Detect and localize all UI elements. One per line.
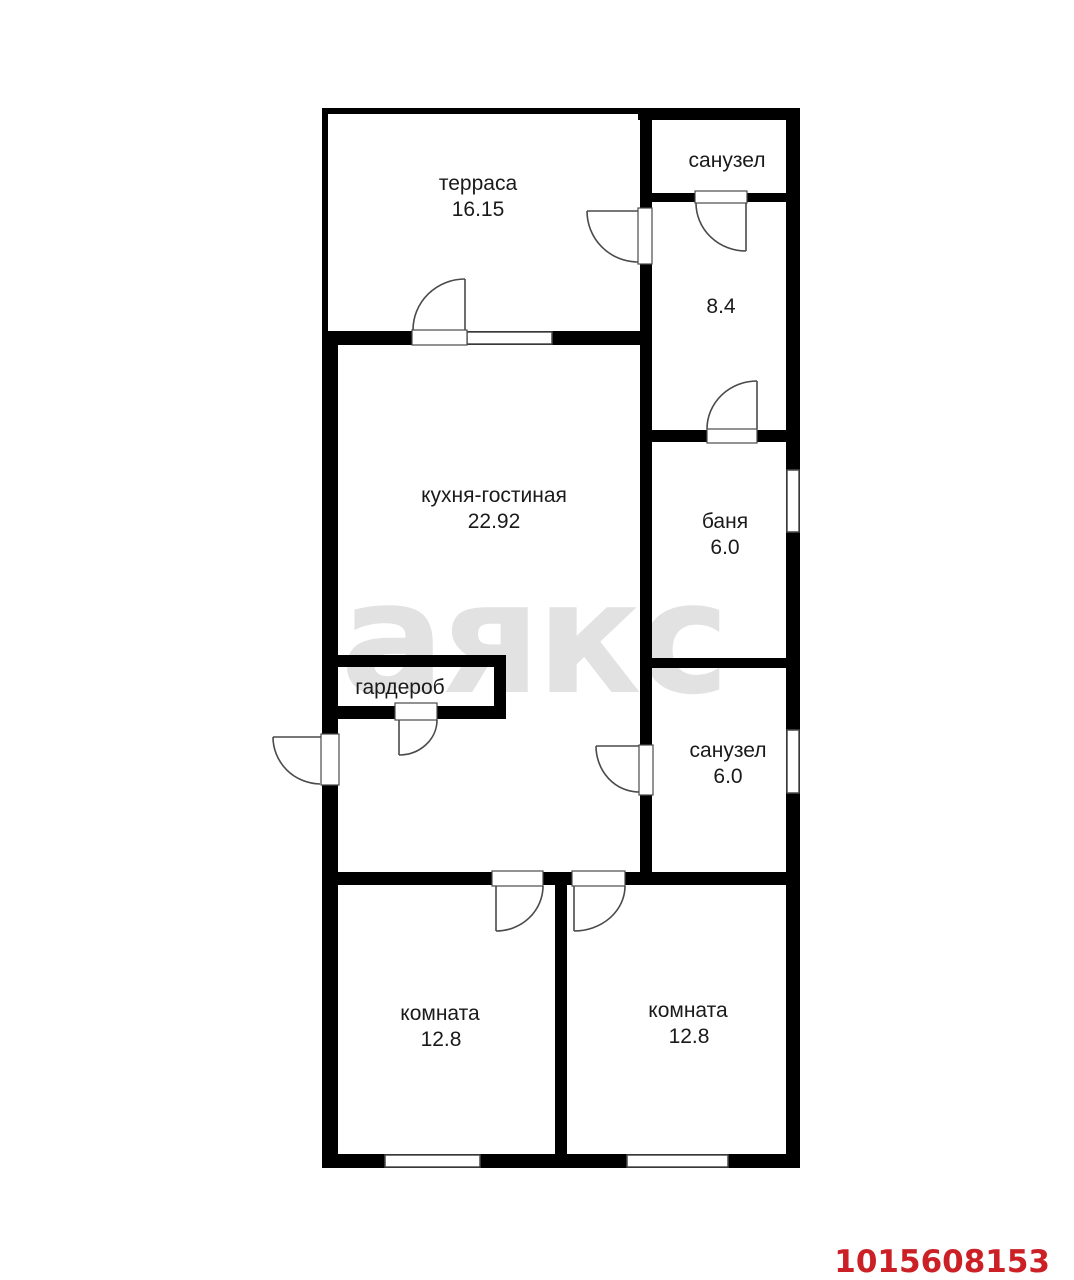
door-room-left xyxy=(496,886,543,931)
door-terrace-kitchen xyxy=(413,279,465,330)
wall-terrace-left xyxy=(322,108,328,336)
door-arc xyxy=(413,279,465,330)
room-label-bathroom-mid: санузел xyxy=(690,739,767,762)
door-bathroom-mid xyxy=(596,746,639,792)
room-label-room-left: комната xyxy=(400,1002,480,1025)
window-room-left xyxy=(385,1155,480,1167)
room-area-hallway: 8.4 xyxy=(706,295,736,318)
room-area-sauna: 6.0 xyxy=(710,536,739,559)
door-opening-room-right xyxy=(572,871,625,886)
wall-right-outer xyxy=(786,108,800,1168)
door-arc xyxy=(574,886,625,931)
door-opening-bathroom-mid xyxy=(639,745,653,795)
floor-plan-page: аякс xyxy=(0,0,1074,1280)
agency-watermark: аякс xyxy=(340,548,725,729)
door-entrance xyxy=(273,737,321,784)
door-terrace-hall xyxy=(587,211,638,262)
wall-top-right xyxy=(638,108,800,120)
window-terrace xyxy=(467,332,552,344)
door-sauna xyxy=(707,381,757,429)
window-room-right xyxy=(627,1155,728,1167)
door-bathroom-top xyxy=(696,203,746,251)
room-label-sauna: баня xyxy=(702,510,748,533)
room-label-wardrobe: гардероб xyxy=(355,676,444,699)
room-label-terrace: терраса xyxy=(439,172,518,195)
wall-bedrooms-divider xyxy=(555,872,567,1168)
floor-plan-drawing: аякс xyxy=(0,0,1074,1280)
door-opening-terrace-hall xyxy=(638,208,652,264)
room-area-terrace: 16.15 xyxy=(452,198,505,221)
door-opening-room-left xyxy=(492,871,543,886)
room-label-bathroom-top: санузел xyxy=(689,149,766,172)
wall-wardrobe-top xyxy=(332,655,506,667)
listing-id: 1015608153 xyxy=(834,1244,1050,1280)
room-area-kitchen-living: 22.92 xyxy=(468,510,521,533)
door-arc xyxy=(696,203,746,251)
door-openings xyxy=(321,191,757,886)
room-area-room-left: 12.8 xyxy=(421,1028,462,1051)
window-bathroom-mid xyxy=(787,730,799,793)
door-room-right xyxy=(574,886,625,931)
door-opening-wardrobe xyxy=(395,703,437,720)
door-arc xyxy=(273,737,320,784)
door-opening-bathroom-top xyxy=(695,191,747,203)
door-opening-sauna xyxy=(707,429,757,443)
room-area-room-right: 12.8 xyxy=(669,1025,710,1048)
door-arc xyxy=(496,886,543,931)
room-label-kitchen-living: кухня-гостиная xyxy=(421,484,567,507)
door-opening-terrace-kitchen xyxy=(412,330,467,345)
door-arc xyxy=(707,381,757,429)
door-arc xyxy=(587,211,638,262)
wall-terrace-top xyxy=(322,108,638,114)
window-sauna xyxy=(787,470,799,532)
room-label-room-right: комната xyxy=(648,999,728,1022)
wall-wardrobe-right xyxy=(494,655,506,719)
wall-sauna-bottom xyxy=(640,658,800,668)
room-area-bathroom-mid: 6.0 xyxy=(713,765,742,788)
door-opening-entrance xyxy=(321,734,339,785)
door-arc xyxy=(596,746,639,792)
